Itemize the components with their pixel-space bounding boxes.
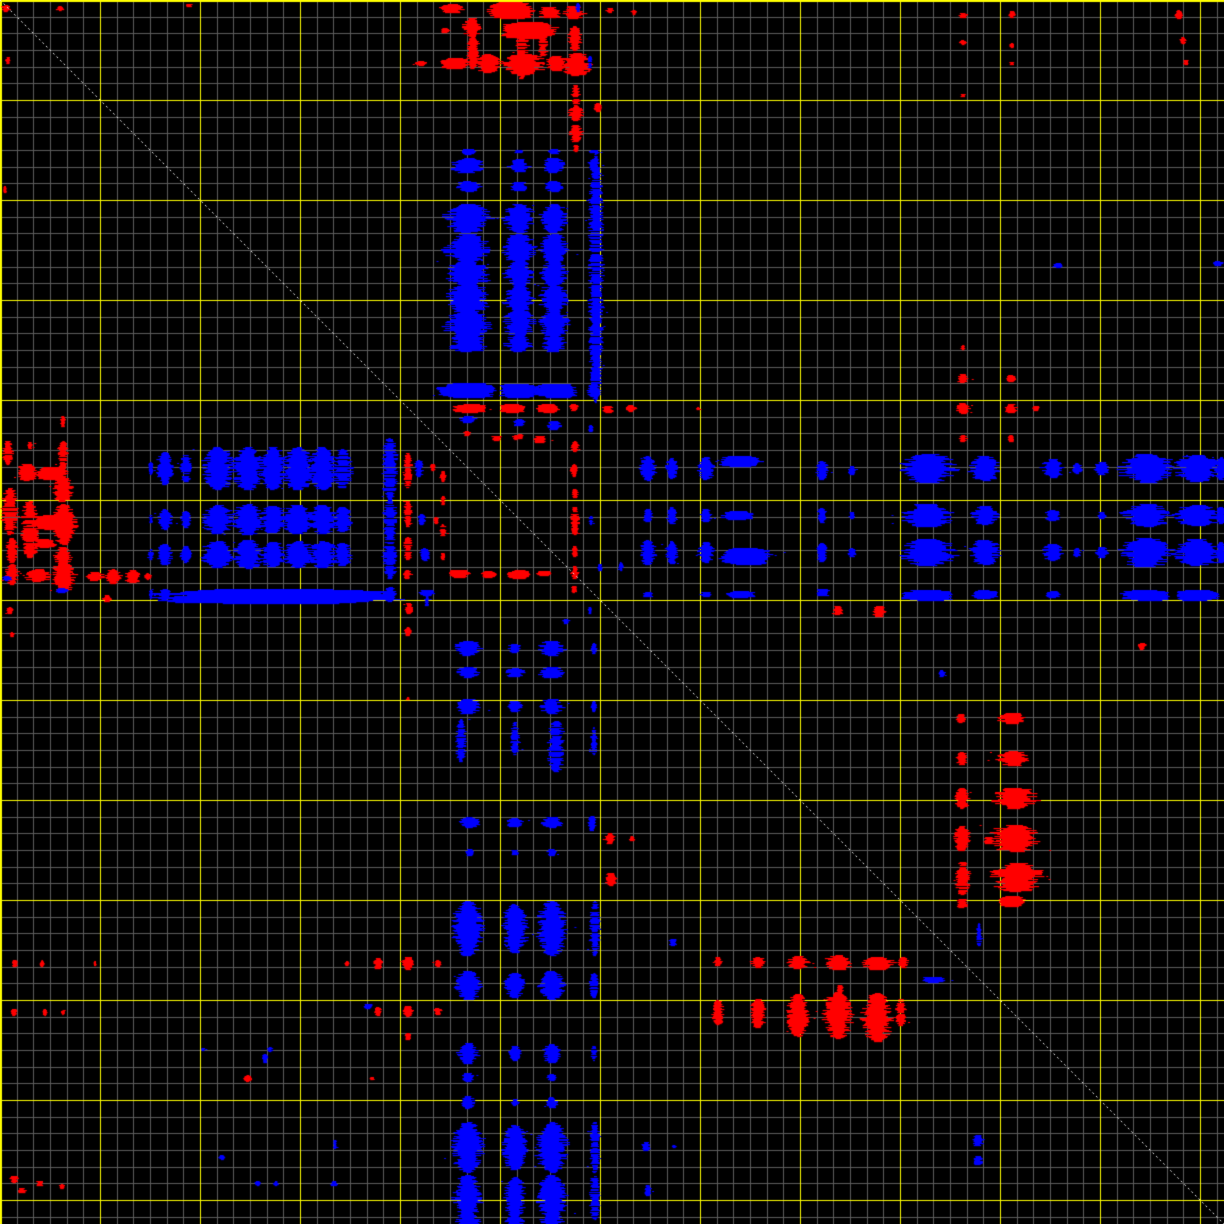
dotplot-viewer	[0, 0, 1224, 1224]
dotplot-canvas	[0, 0, 1224, 1224]
